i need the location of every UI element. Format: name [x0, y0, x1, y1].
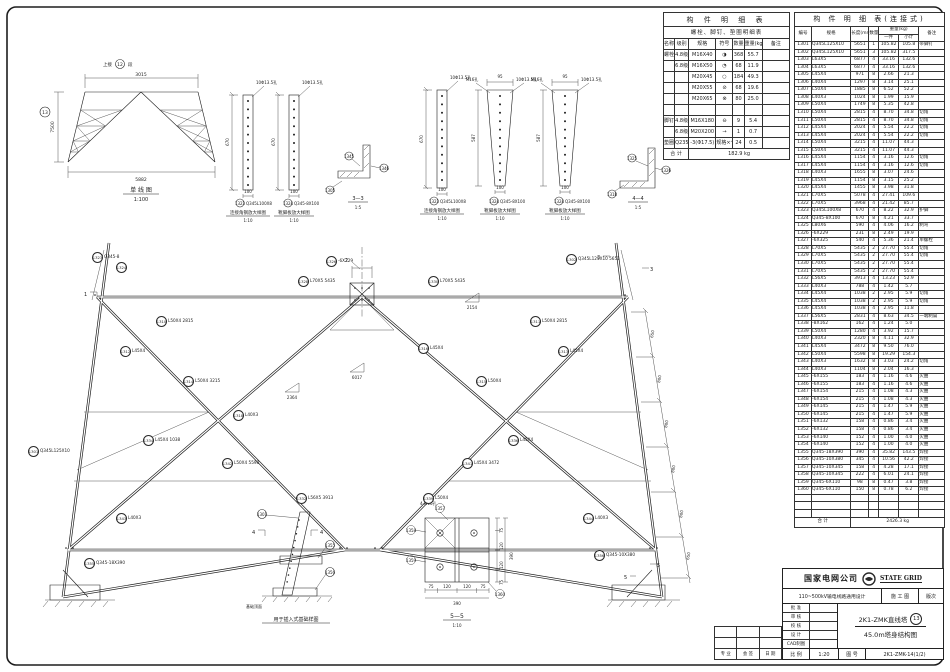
- dim: 120: [443, 584, 451, 589]
- member-label: 1315L50X4: [476, 376, 501, 387]
- leg-dim: 650: [649, 329, 655, 338]
- hole-note: 10Φ13.5孔: [302, 79, 323, 85]
- table-row: 1309 L50X4 1749 8 5.35 42.8: [795, 102, 945, 110]
- table-row: 1360 Q345-6X110 150 8 0.78 6.2 焊接: [795, 487, 945, 495]
- role-label: CAD制图: [783, 640, 810, 648]
- table-row: 1333 L40X3 788 4 1.42 5.7: [795, 283, 945, 291]
- upper-section-number: 12: [117, 62, 123, 68]
- table-row: 1316 L45X4 1154 4 3.16 12.6 切角: [795, 155, 945, 163]
- hole-note: 10Φ13.5孔: [581, 76, 602, 82]
- member-label: 1316L45X4: [418, 343, 443, 354]
- table-row: M20X65 ⊗ 80 25.0: [664, 94, 790, 105]
- role-label: 设 计: [783, 631, 810, 639]
- table-row: 1311 L50X4 2815 4 8.70 34.8 切角: [795, 117, 945, 125]
- single-line-diagram: 上接 12 段 3015 5882 7500 13 单 线 图 1:100: [40, 60, 215, 204]
- company-row: 国家电网公司 STATE GRID: [783, 569, 943, 589]
- detail-scale: 1:10: [438, 216, 447, 221]
- leg-dim: 800: [670, 464, 676, 473]
- table-row: 螺栓 4.8级 M16X40 ◑ 368 55.7: [664, 50, 790, 61]
- col-header: 名称: [664, 39, 675, 50]
- table-row: 1359 Q345-6X110 98 8 0.47 3.8 焊接: [795, 479, 945, 487]
- table-row: 脚钉 4.8级 M16X180 ⊖ 9 5.4: [664, 116, 790, 127]
- foundation-note: 基础顶面: [246, 603, 262, 609]
- detail-d3: 670 100 10Φ13.5孔 1323 Q345L100X8 连接角钢放大样…: [419, 74, 471, 221]
- table-row: 1324 Q345-8X100 670 8 4.21 33.7: [795, 215, 945, 223]
- detail-width: 100: [290, 189, 298, 194]
- leg-dim: 800: [663, 419, 669, 428]
- role-label: 校 核: [783, 622, 810, 630]
- part-number: 1358: [406, 528, 417, 533]
- dim-left: 7500: [50, 121, 56, 133]
- member-label: 1334L45X4 1038: [143, 435, 180, 446]
- member-label: 1355Q345-18X390: [84, 558, 125, 569]
- signature-roles: 批 准 审 核 校 核 设 计 CAD制图: [783, 604, 838, 648]
- bolt-table-title: 构 件 明 细 表: [664, 13, 790, 27]
- dim: 120: [463, 584, 471, 589]
- drawing-title-line2: 45.0m塔身结构图: [864, 629, 917, 639]
- detail-d1: 670 100 10Φ13.5孔 1323 Q345L100X8 连接角钢放大样…: [225, 79, 277, 223]
- col-header: 重量(kg): [878, 27, 918, 35]
- part-number: 1325: [627, 156, 638, 161]
- table-row: 1326 -6X229 231 8 2.49 19.9: [795, 230, 945, 238]
- detail-s33: 1345 1346 1305 3—3 1:5: [325, 145, 390, 210]
- dim: 75: [499, 579, 504, 585]
- table-row: M20X45 ○ 184 49.3: [664, 72, 790, 83]
- member-label: 1339L50X4: [423, 493, 448, 504]
- role-label: 审 核: [783, 613, 810, 621]
- table-row: 1354 -6X140 152 4 1.00 4.0 火曲: [795, 442, 945, 450]
- part-spec: Q345-8X100: [294, 201, 320, 206]
- table-row: 1352 -6X132 158 4 0.86 3.4 火曲: [795, 426, 945, 434]
- table-row: 1350 -6X145 215 4 1.47 5.9 火曲: [795, 411, 945, 419]
- table-row: 1349 -6X145 215 4 1.47 5.9 火曲: [795, 404, 945, 412]
- section-title: 3—3: [352, 196, 363, 202]
- table-row: 1328 L70X5 5435 2 27.70 55.4 切角: [795, 245, 945, 253]
- part-number: 1357: [435, 506, 446, 511]
- section-title: 4—4: [632, 196, 643, 202]
- section-flag-1: 1: [84, 292, 87, 298]
- dim: 120: [499, 561, 504, 569]
- part-spec: Q345L100X8: [246, 201, 272, 206]
- member-total-value: 2426.3 kg: [851, 517, 945, 527]
- scale-value: 1:20: [810, 649, 839, 660]
- detail-dim: 587: [471, 134, 476, 142]
- detail-s44: 1325 1326 1318 4—4 1:5: [607, 148, 672, 210]
- table-row: 1346 -6X155 183 4 1.16 4.6 火曲: [795, 381, 945, 389]
- table-row: 1320 L45X4 1455 8 3.98 31.8: [795, 185, 945, 193]
- dim: 75: [428, 584, 434, 589]
- bolt-rows: 螺栓 4.8级 M16X40 ◑ 368 55.7 6.8级 M16X50 ◔ …: [664, 50, 790, 149]
- detail-scale: 1:10: [496, 216, 505, 221]
- col-header: 规格: [812, 27, 851, 42]
- table-row: 1318 L40X3 1655 8 3.07 24.6: [795, 170, 945, 178]
- table-row: 1334 L45X4 1038 2 2.95 5.9 切角: [795, 291, 945, 299]
- col-header: 编号: [795, 27, 812, 42]
- member-label: 1328L70X5 5435: [298, 276, 335, 287]
- revision-label: 版次: [919, 589, 943, 603]
- bolt-table-subtitle: 螺栓、脚钉、垫圈明细表: [664, 27, 790, 39]
- detail-dim: 670: [419, 135, 424, 143]
- table-row: [664, 105, 790, 116]
- title-block: 国家电网公司 STATE GRID 110~500kV输电线路通用设计 施 工 …: [782, 568, 944, 660]
- section-flag-3: 3: [650, 267, 653, 273]
- member-label: 1326-6X229: [326, 256, 353, 267]
- top-dim: 95: [497, 74, 503, 79]
- table-row: 1321 L70X5 5078 4 27.41 109.6: [795, 193, 945, 201]
- drawing-no-label: 图 号: [839, 649, 866, 660]
- table-row: 1303 L63X5 6877 4 33.16 132.6: [795, 57, 945, 65]
- role-label: 批 准: [783, 604, 810, 612]
- company-name-en: STATE GRID: [880, 575, 922, 583]
- scale-label: 比 例: [783, 649, 810, 660]
- detail-d5: 95 M16孔 10Φ13.5孔 587 100 1324 Q345-8X100…: [531, 74, 602, 221]
- dim-top: 3015: [135, 72, 147, 78]
- member-table: 构 件 明 细 表(连接式) 编号 规格 长度(mm) 数量 重量(kg) 备注…: [794, 12, 945, 528]
- part-number: 1356: [325, 570, 336, 575]
- detail-dim: 587: [536, 134, 541, 142]
- slope-value: 2364: [287, 395, 298, 400]
- dim: 75: [480, 584, 486, 589]
- table-row: M20X55 ⊘ 68 19.6: [664, 83, 790, 94]
- table-row: 1329 L70X5 5435 2 27.70 55.4 切角: [795, 253, 945, 261]
- table-row: 1319 L45X4 1154 8 3.15 25.2: [795, 177, 945, 185]
- part-number: 1359: [406, 558, 417, 563]
- table-row: 6.8级 M16X50 ◔ 68 11.9: [664, 61, 790, 72]
- leg-dim: 800: [678, 509, 684, 518]
- table-row: 1331 L70X5 5435 2 27.70 55.4: [795, 268, 945, 276]
- state-grid-logo-icon: [862, 572, 876, 586]
- col-header: 重量(kg): [744, 39, 762, 50]
- part-number: 1324: [554, 199, 565, 204]
- table-row: 1336 L45X4 1038 4 2.95 11.8: [795, 306, 945, 314]
- detail-d2: 670 100 10Φ13.5孔 1324 Q345-8X100 靴脚板放大样图…: [271, 79, 323, 223]
- part-number: 1323: [429, 199, 440, 204]
- detail-width: 100: [561, 185, 569, 190]
- table-row: 1314 L50X4 3215 4 11.07 44.3: [795, 140, 945, 148]
- detail-scale: 1:10: [244, 218, 253, 223]
- table-row: 1327 -6X325 540 4 5.36 21.4 单螺栓: [795, 238, 945, 246]
- table-row: 1302 Q345L125X10 5651 3 105.82 317.5: [795, 49, 945, 57]
- table-row: 1348 -6X154 215 4 1.08 4.3 火曲: [795, 396, 945, 404]
- member-label: 1302Q345L125X10 5651: [566, 254, 620, 265]
- leg-dim: 650: [685, 551, 691, 560]
- member-label: 1314L50X4 3215: [183, 376, 220, 387]
- part-spec: Q345-8X100: [500, 199, 526, 204]
- table-row: 1304 L63X5 6877 4 33.16 132.6: [795, 64, 945, 72]
- member-label: 1311L50X4 2815: [530, 316, 567, 327]
- member-label: 1310L50X4 2815: [156, 316, 193, 327]
- table-row: 1347 -6X154 215 4 1.08 4.3 火曲: [795, 389, 945, 397]
- section-number: 13: [42, 110, 48, 116]
- part-spec: Q345L100X8: [440, 199, 466, 204]
- dim: 120: [499, 542, 504, 550]
- member-label: 1344L40X3: [583, 513, 608, 524]
- dim-bottom: 5882: [135, 177, 147, 183]
- part-number: 1346: [379, 166, 390, 171]
- drawing-sheet: 上接 12 段 3015 5882 7500 13 单 线 图 1:100 67…: [0, 0, 950, 672]
- single-line-title: 单 线 图: [130, 186, 152, 194]
- member-label: 1330L70X5 5435: [428, 276, 465, 287]
- table-row: 1358 Q345-10X345 222 4 6.01 24.1 焊接: [795, 472, 945, 480]
- table-row: [795, 502, 945, 510]
- table-row: 1353 -6X140 152 4 1.00 4.0 火曲: [795, 434, 945, 442]
- table-row: 6.8级 M20X200 → 1 0.7: [664, 127, 790, 138]
- section-flag-4: 4: [320, 530, 323, 536]
- bolt-table: 构 件 明 细 表 螺栓、脚钉、垫圈明细表 名称 级别 规格 符号 数量 重量(…: [663, 12, 790, 160]
- sign-col-label: 日 期: [759, 649, 781, 660]
- table-row: 1312 L45X4 2024 4 5.54 22.2 切角: [795, 125, 945, 133]
- table-row: 1322 L70X5 3968 4 21.42 85.7: [795, 200, 945, 208]
- part-number: 1345: [344, 154, 355, 159]
- table-row: 1335 L45X4 1038 2 2.95 5.9 切角: [795, 298, 945, 306]
- detail-title: 连接角钢放大样图: [230, 209, 266, 216]
- member-label: 1312L45X4: [120, 346, 145, 357]
- table-row: 1343 L40X3 1632 8 3.03 24.2 切角: [795, 359, 945, 367]
- drawing-title-line1: 2K1-ZMK直线塔: [859, 614, 908, 624]
- project-name: 110~500kV输电线路通用设计: [783, 589, 882, 603]
- col-header: 数量: [733, 39, 744, 50]
- table-row: 1315 L50X4 3215 4 11.07 44.3: [795, 147, 945, 155]
- sign-col-label: 会 签: [737, 649, 759, 660]
- detail-width: 100: [438, 187, 446, 192]
- company-name: 国家电网公司: [804, 573, 858, 584]
- detail-title: 靴脚板放大样图: [484, 207, 516, 214]
- detail-title: 连接角钢放大样图: [424, 207, 460, 214]
- table-row: 1338 -8X162 162 4 1.24 5.0: [795, 321, 945, 329]
- detail-scale: 1:10: [290, 218, 299, 223]
- table-row: 1323 Q345L100X8 670 4 8.22 32.9 护脚: [795, 208, 945, 216]
- table-row: 1307 L50X4 1885 8 6.52 52.2: [795, 87, 945, 95]
- member-label: 1318L40X3: [233, 410, 258, 421]
- col-header: 长度(mm): [851, 27, 869, 42]
- member-label: 1343L40X3: [116, 513, 141, 524]
- table-row: 1345 -6X155 183 4 1.16 4.6 火曲: [795, 374, 945, 382]
- table-row: 1339 L50X4 1280 4 3.92 15.7: [795, 328, 945, 336]
- member-rows: 1301 Q345L125X10 5651 1 105.82 105.8 带脚钉…: [795, 42, 945, 517]
- col-header: 规格: [689, 39, 716, 50]
- part-number: 1318: [607, 192, 618, 197]
- part-number: 1326: [661, 168, 672, 173]
- member-label: 1342L50X4 5598: [222, 458, 259, 469]
- drawing-title: 2K1-ZMK直线塔13 45.0m塔身结构图: [838, 604, 943, 648]
- slope-value: 6017: [352, 375, 363, 380]
- table-row: 1330 L70X5 5435 2 27.70 55.4: [795, 260, 945, 268]
- col-header: 符号: [716, 39, 733, 50]
- scale-number-row: 比 例 1:20 图 号 2K1-ZMK-14(1/2): [783, 649, 943, 660]
- member-label: 1356Q345-10X380: [594, 550, 635, 561]
- table-row: 1310 L50X4 2815 4 8.70 34.8 切角: [795, 110, 945, 118]
- part-number: 1324: [283, 201, 294, 206]
- section-flag-5: 5: [624, 575, 627, 581]
- table-row: 1337 L56X5 2831 4 8.63 34.5 一端制扁: [795, 313, 945, 321]
- detail-dim: 670: [271, 138, 276, 146]
- table-row: 1357 Q345-10X345 158 4 4.28 17.1 焊接: [795, 464, 945, 472]
- detail-title: 靴脚板放大样图: [549, 207, 581, 214]
- col-header: 级别: [675, 39, 689, 50]
- section-flag-5: 5: [657, 563, 660, 569]
- dim-total: 390: [509, 552, 514, 560]
- detail-d4: 95 M16孔 10Φ13.5孔 587 100 1324 Q345-8X100…: [466, 74, 537, 221]
- sheet-number-badge: 13: [910, 613, 922, 625]
- member-label: 1332L56X5 3913: [296, 493, 333, 504]
- dim: 75: [499, 527, 504, 533]
- table-row: 1305 L45X4 971 8 2.66 21.3: [795, 72, 945, 80]
- part-spec: Q345-8X100: [565, 199, 591, 204]
- table-row: 1341 L45X4 3472 8 9.50 76.0: [795, 343, 945, 351]
- slope-value: 2154: [467, 305, 478, 310]
- project-row: 110~500kV输电线路通用设计 施 工 图 版次: [783, 589, 943, 604]
- member-table-title: 构 件 明 细 表(连接式): [795, 13, 945, 27]
- section-flag-4: 4: [252, 530, 255, 536]
- table-row: [795, 510, 945, 518]
- table-row: 1301 Q345L125X10 5651 1 105.82 105.8 带脚钉: [795, 42, 945, 50]
- section-scale: 1:5: [355, 205, 362, 210]
- table-row: 垫圈 Q235 -3(Φ17.5) 规格×个数 24 0.5: [664, 138, 790, 149]
- detail-title: 靴脚板放大样图: [278, 209, 310, 216]
- bolt-total-label: 合 计: [664, 149, 689, 160]
- table-row: 1351 -6X132 158 4 0.86 3.4 火曲: [795, 419, 945, 427]
- section-scale: 1:10: [453, 623, 462, 628]
- section-title: 5—5: [450, 613, 464, 620]
- member-label: 1341L45X4 3472: [462, 458, 499, 469]
- col-header: 数量: [869, 27, 879, 42]
- table-row: 1342 L50X4 5598 8 19.29 154.3: [795, 351, 945, 359]
- member-total-label: 合 计: [795, 517, 851, 527]
- stage: 施 工 图: [882, 589, 919, 603]
- hole-note: 10Φ13.5孔: [256, 79, 277, 85]
- table-row: 1340 L40X3 2320 8 4.11 32.9: [795, 336, 945, 344]
- col-header: 小计: [899, 34, 919, 42]
- col-header: 一件: [878, 34, 898, 42]
- part-number: 1360: [495, 592, 506, 597]
- leg-dim: 800: [656, 374, 662, 383]
- table-row: 1306 L40X4 1297 8 3.14 25.1: [795, 79, 945, 87]
- sign-off-table: 专 业 会 签 日 期: [714, 626, 782, 658]
- table-row: 1325 L80X6 590 4 4.06 16.2 制弯: [795, 223, 945, 231]
- table-row: 1355 Q345-18X390 390 4 35.82 143.5 焊接: [795, 449, 945, 457]
- detail-scale: 1:10: [561, 216, 570, 221]
- table-row: 1308 L40X3 1024 8 1.99 15.9: [795, 94, 945, 102]
- bolt-total-value: 182.9 kg: [689, 149, 790, 160]
- table-row: 1317 L45X4 1154 4 3.16 12.6 切角: [795, 162, 945, 170]
- detail-title: 用于插入式基础样图: [273, 616, 318, 623]
- part-number: 1305: [325, 188, 336, 193]
- hole-note: M16孔: [531, 76, 544, 82]
- upper-section-note: 上接: [103, 61, 112, 68]
- part-number: 1324: [489, 199, 500, 204]
- part-number: 1301: [257, 512, 268, 517]
- member-label: 1313L45X4: [558, 346, 583, 357]
- table-row: 1344 L40X3 1104 8 2.04 16.3: [795, 366, 945, 374]
- part-number: 1323: [235, 201, 246, 206]
- table-row: [795, 494, 945, 502]
- hole-note: M16孔: [466, 76, 479, 82]
- sign-col-label: 专 业: [715, 649, 737, 660]
- section-scale: 1:5: [635, 205, 642, 210]
- detail-width: 100: [496, 185, 504, 190]
- single-line-scale: 1:100: [134, 197, 148, 203]
- top-dim: 95: [562, 74, 568, 79]
- detail-dim: 670: [225, 138, 230, 146]
- dim-total: 390: [453, 601, 461, 606]
- table-row: 1313 L45X4 2024 4 5.54 22.2 切角: [795, 132, 945, 140]
- upper-section-suffix: 段: [128, 61, 133, 68]
- detail-width: 100: [244, 189, 252, 194]
- table-row: 1332 L56X5 3913 4 13.23 52.9: [795, 276, 945, 284]
- col-header: 备注: [919, 27, 945, 42]
- member-label: 1301Q345L125X10: [28, 446, 70, 457]
- part-number: 1355: [325, 543, 336, 548]
- member-label: 1336L45X4: [508, 435, 533, 446]
- col-header: 备注: [762, 39, 789, 50]
- table-row: 1356 Q345-10X380 345 4 10.56 42.2 焊接: [795, 457, 945, 465]
- drawing-no-value: 2K1-ZMK-14(1/2): [866, 649, 943, 660]
- member-label: 1324: [116, 262, 128, 273]
